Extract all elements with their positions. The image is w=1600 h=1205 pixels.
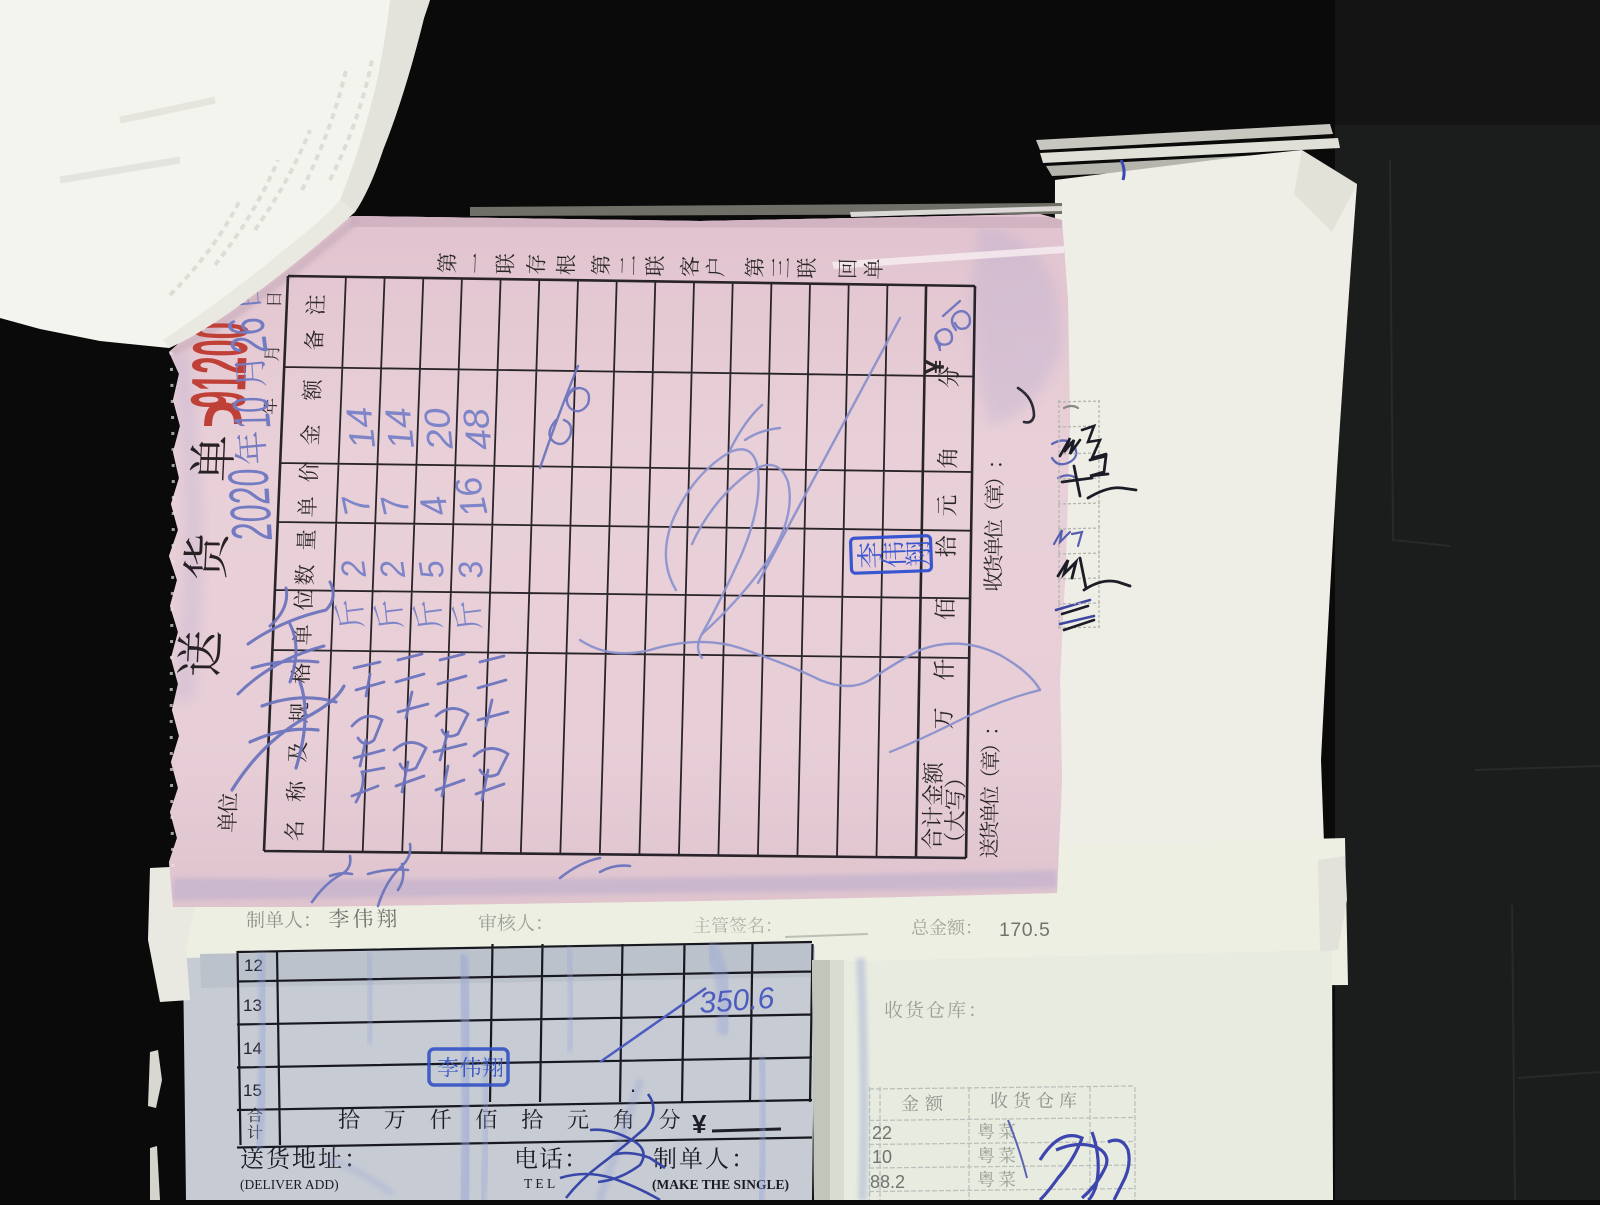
svg-text:20: 20	[417, 405, 461, 453]
svg-text:.: .	[630, 1072, 636, 1097]
svg-text:14: 14	[340, 405, 384, 452]
svg-text:¥: ¥	[692, 1109, 707, 1139]
svg-text:48: 48	[456, 406, 500, 453]
svg-text:(DELIVER ADD): (DELIVER ADD)	[240, 1177, 339, 1192]
svg-text:(MAKE THE SINGLE): (MAKE THE SINGLE)	[652, 1177, 789, 1192]
svg-text:2020: 2020	[216, 466, 284, 544]
svg-text:22: 22	[872, 1123, 892, 1143]
svg-text:88.2: 88.2	[870, 1172, 905, 1192]
svg-text:170.5: 170.5	[999, 919, 1050, 941]
svg-text:T E L: T E L	[524, 1176, 555, 1191]
svg-text:14: 14	[378, 405, 422, 452]
svg-text:350.6: 350.6	[698, 982, 776, 1020]
svg-text:10: 10	[872, 1147, 892, 1167]
svg-text:¥: ¥	[919, 359, 950, 374]
